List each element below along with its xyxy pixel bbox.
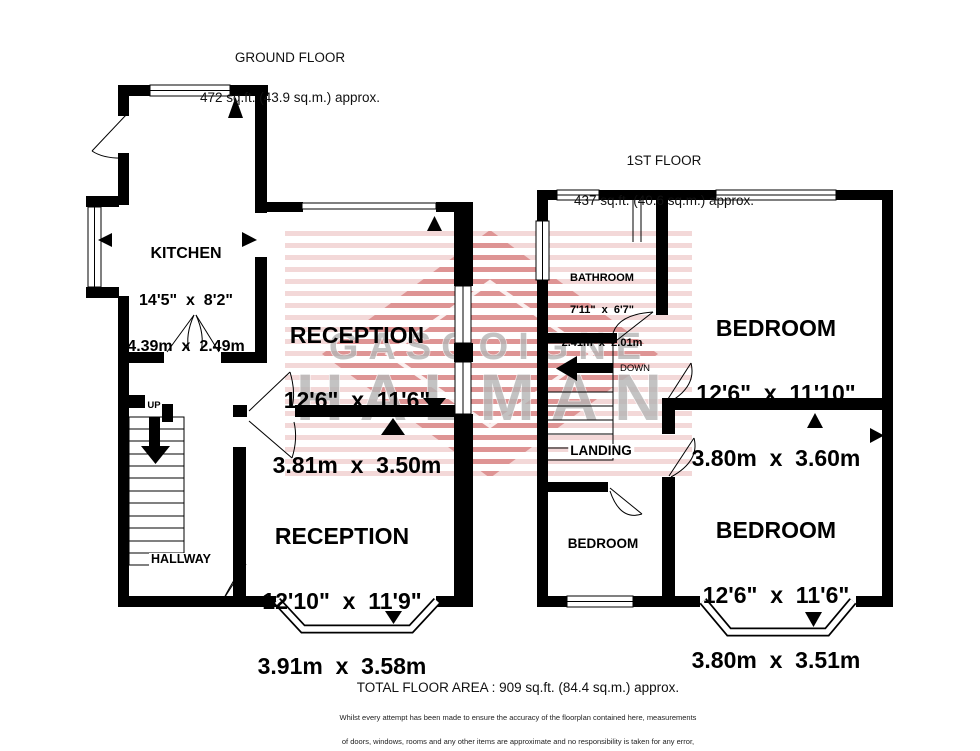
first-floor-title: 1ST FLOOR — [574, 155, 754, 168]
floorplan-page: GASCOIGNE HALMAN — [0, 0, 980, 751]
triangle-up-icon — [427, 216, 442, 231]
disclaimer-line: Whilst every attempt has been made to en… — [338, 713, 699, 722]
disclaimer: Whilst every attempt has been made to en… — [338, 698, 699, 751]
first-floor-header: 1ST FLOOR 437 sq.ft. (40.6 sq.m.) approx… — [574, 128, 754, 234]
room-label-kitchen: KITCHEN 14'5" x 8'2" 4.39m x 2.49m — [127, 215, 244, 387]
room-label-bedroom-2: BEDROOM 12'6" x 11'6" 3.80m x 3.51m — [692, 475, 861, 716]
ground-floor-area: 472 sq.ft. (43.9 sq.m.) approx. — [200, 92, 380, 105]
window — [302, 203, 436, 209]
first-floor-area: 437 sq.ft. (40.6 sq.m.) approx. — [574, 195, 754, 208]
ground-floor-header: GROUND FLOOR 472 sq.ft. (43.9 sq.m.) app… — [200, 25, 380, 131]
room-label-bathroom: BATHROOM 7'11" x 6'7" 2.41m x 2.01m — [562, 251, 643, 370]
room-label-bedroom-3: BEDROOM — [566, 537, 641, 551]
room-label-hallway: HALLWAY — [149, 553, 213, 566]
stairs-up-label: UP — [147, 401, 160, 411]
stairs-down-label: DOWN — [620, 364, 650, 374]
total-floor-area: TOTAL FLOOR AREA : 909 sq.ft. (84.4 sq.m… — [357, 681, 679, 695]
triangle-right-icon — [870, 428, 884, 443]
ground-floor-title: GROUND FLOOR — [200, 52, 380, 65]
door-arc — [92, 115, 126, 151]
disclaimer-line: of doors, windows, rooms and any other i… — [338, 737, 699, 746]
room-label-landing: LANDING — [568, 444, 634, 458]
